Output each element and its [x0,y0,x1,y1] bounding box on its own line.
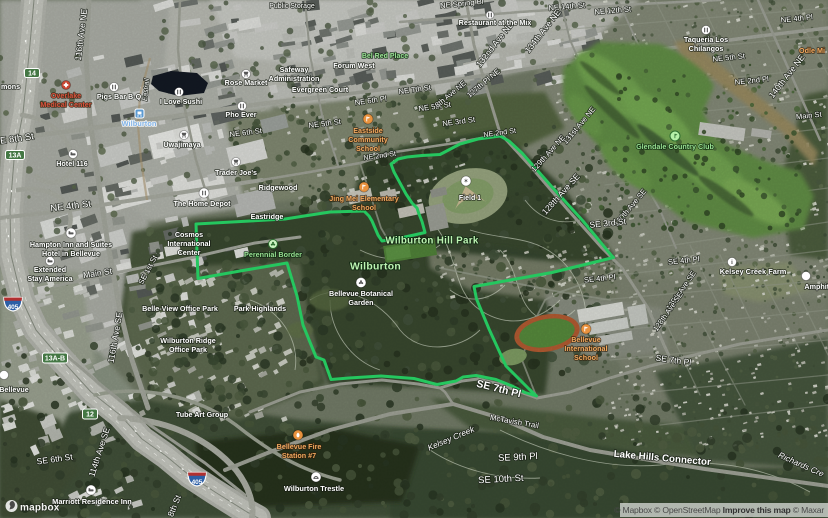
svg-text:Garden: Garden [348,298,373,307]
svg-text:✶: ✶ [463,177,469,185]
svg-text:Restaurant at the Mix: Restaurant at the Mix [459,18,532,27]
svg-text:Hotel 116: Hotel 116 [56,159,88,168]
svg-text:International: International [167,239,210,248]
svg-text:Wilburton Hill Park: Wilburton Hill Park [385,236,478,247]
svg-text:Chilangos: Chilangos [689,44,724,53]
svg-text:Taqueria Los: Taqueria Los [684,35,728,44]
svg-text:I Love Sushi: I Love Sushi [160,97,202,106]
svg-text:405: 405 [192,479,203,486]
svg-text:Public Storage: Public Storage [269,3,315,10]
svg-text:Trader Joe's: Trader Joe's [215,168,257,177]
svg-text:School: School [356,144,380,153]
svg-text:Office Park: Office Park [169,345,207,354]
svg-text:mons: mons [1,82,20,91]
svg-text:Wilburton Trestle: Wilburton Trestle [284,484,344,493]
svg-text:Overlake: Overlake [51,91,81,100]
svg-text:Kelsey Creek Farm: Kelsey Creek Farm [720,267,787,276]
svg-text:Stay America: Stay America [27,274,73,283]
svg-text:Tube Art Group: Tube Art Group [176,410,229,419]
svg-text:Bellevue Botanical: Bellevue Botanical [329,289,393,298]
svg-text:Field 1: Field 1 [459,195,481,202]
svg-text:13A-B: 13A-B [45,356,65,363]
svg-text:Glendale Country Club: Glendale Country Club [636,142,714,151]
svg-text:School: School [352,203,376,212]
svg-text:Center: Center [178,248,201,257]
svg-text:Jing Mei Elementary: Jing Mei Elementary [329,194,399,203]
svg-text:Wilburton: Wilburton [350,262,401,273]
svg-text:Extended: Extended [34,265,66,274]
svg-text:Pigs Bar B-Q: Pigs Bar B-Q [97,92,142,101]
svg-text:School: School [574,353,598,362]
svg-text:13A: 13A [9,153,22,160]
svg-text:Community: Community [348,135,388,144]
svg-text:Odle Mi: Odle Mi [799,46,825,55]
svg-text:Wilburton Ridge: Wilburton Ridge [160,336,215,345]
svg-text:Marriott Residence Inn: Marriott Residence Inn [52,497,132,506]
svg-text:Bel Red Place: Bel Red Place [362,53,408,60]
svg-text:Perennial Border: Perennial Border [244,250,302,259]
svg-text:Medical Center: Medical Center [40,100,91,109]
svg-text:14: 14 [28,71,36,78]
svg-text:Station #7: Station #7 [282,451,316,460]
svg-text:mapbox: mapbox [20,503,60,514]
svg-text:Eastridge: Eastridge [251,212,284,221]
svg-text:Belle-View Office Park: Belle-View Office Park [142,304,218,313]
svg-text:Cosmos: Cosmos [175,230,203,239]
svg-text:Evergreen Court: Evergreen Court [292,85,349,94]
svg-text:Forum West: Forum West [333,61,375,70]
svg-text:The Home Depot: The Home Depot [173,199,231,208]
svg-text:Administration: Administration [269,74,320,83]
svg-text:Pho Ever: Pho Ever [225,110,256,119]
svg-text:Bellevue Fire: Bellevue Fire [277,442,322,451]
svg-text:SE 9th Pl: SE 9th Pl [498,451,538,464]
svg-text:Eastside: Eastside [353,126,383,135]
svg-text:International: International [564,344,607,353]
svg-text:Uwajimaya: Uwajimaya [163,140,201,149]
svg-text:Safeway: Safeway [280,65,309,74]
svg-text:Park Highlands: Park Highlands [234,304,286,313]
svg-text:Hampton Inn and Suites: Hampton Inn and Suites [30,240,112,249]
svg-text:Wilburton: Wilburton [122,119,157,128]
svg-text:Amphithe: Amphithe [804,282,828,291]
svg-text:405: 405 [8,304,19,311]
svg-text:Ridgewood: Ridgewood [259,183,298,192]
svg-text:Bellevue: Bellevue [571,335,601,344]
svg-text:Rose Market: Rose Market [225,78,268,87]
svg-text:© Mapbox © OpenStreetMap Impro: © Mapbox © OpenStreetMap Improve this ma… [614,505,824,515]
svg-text:12: 12 [86,412,94,419]
svg-text:Bellevue: Bellevue [0,385,29,394]
